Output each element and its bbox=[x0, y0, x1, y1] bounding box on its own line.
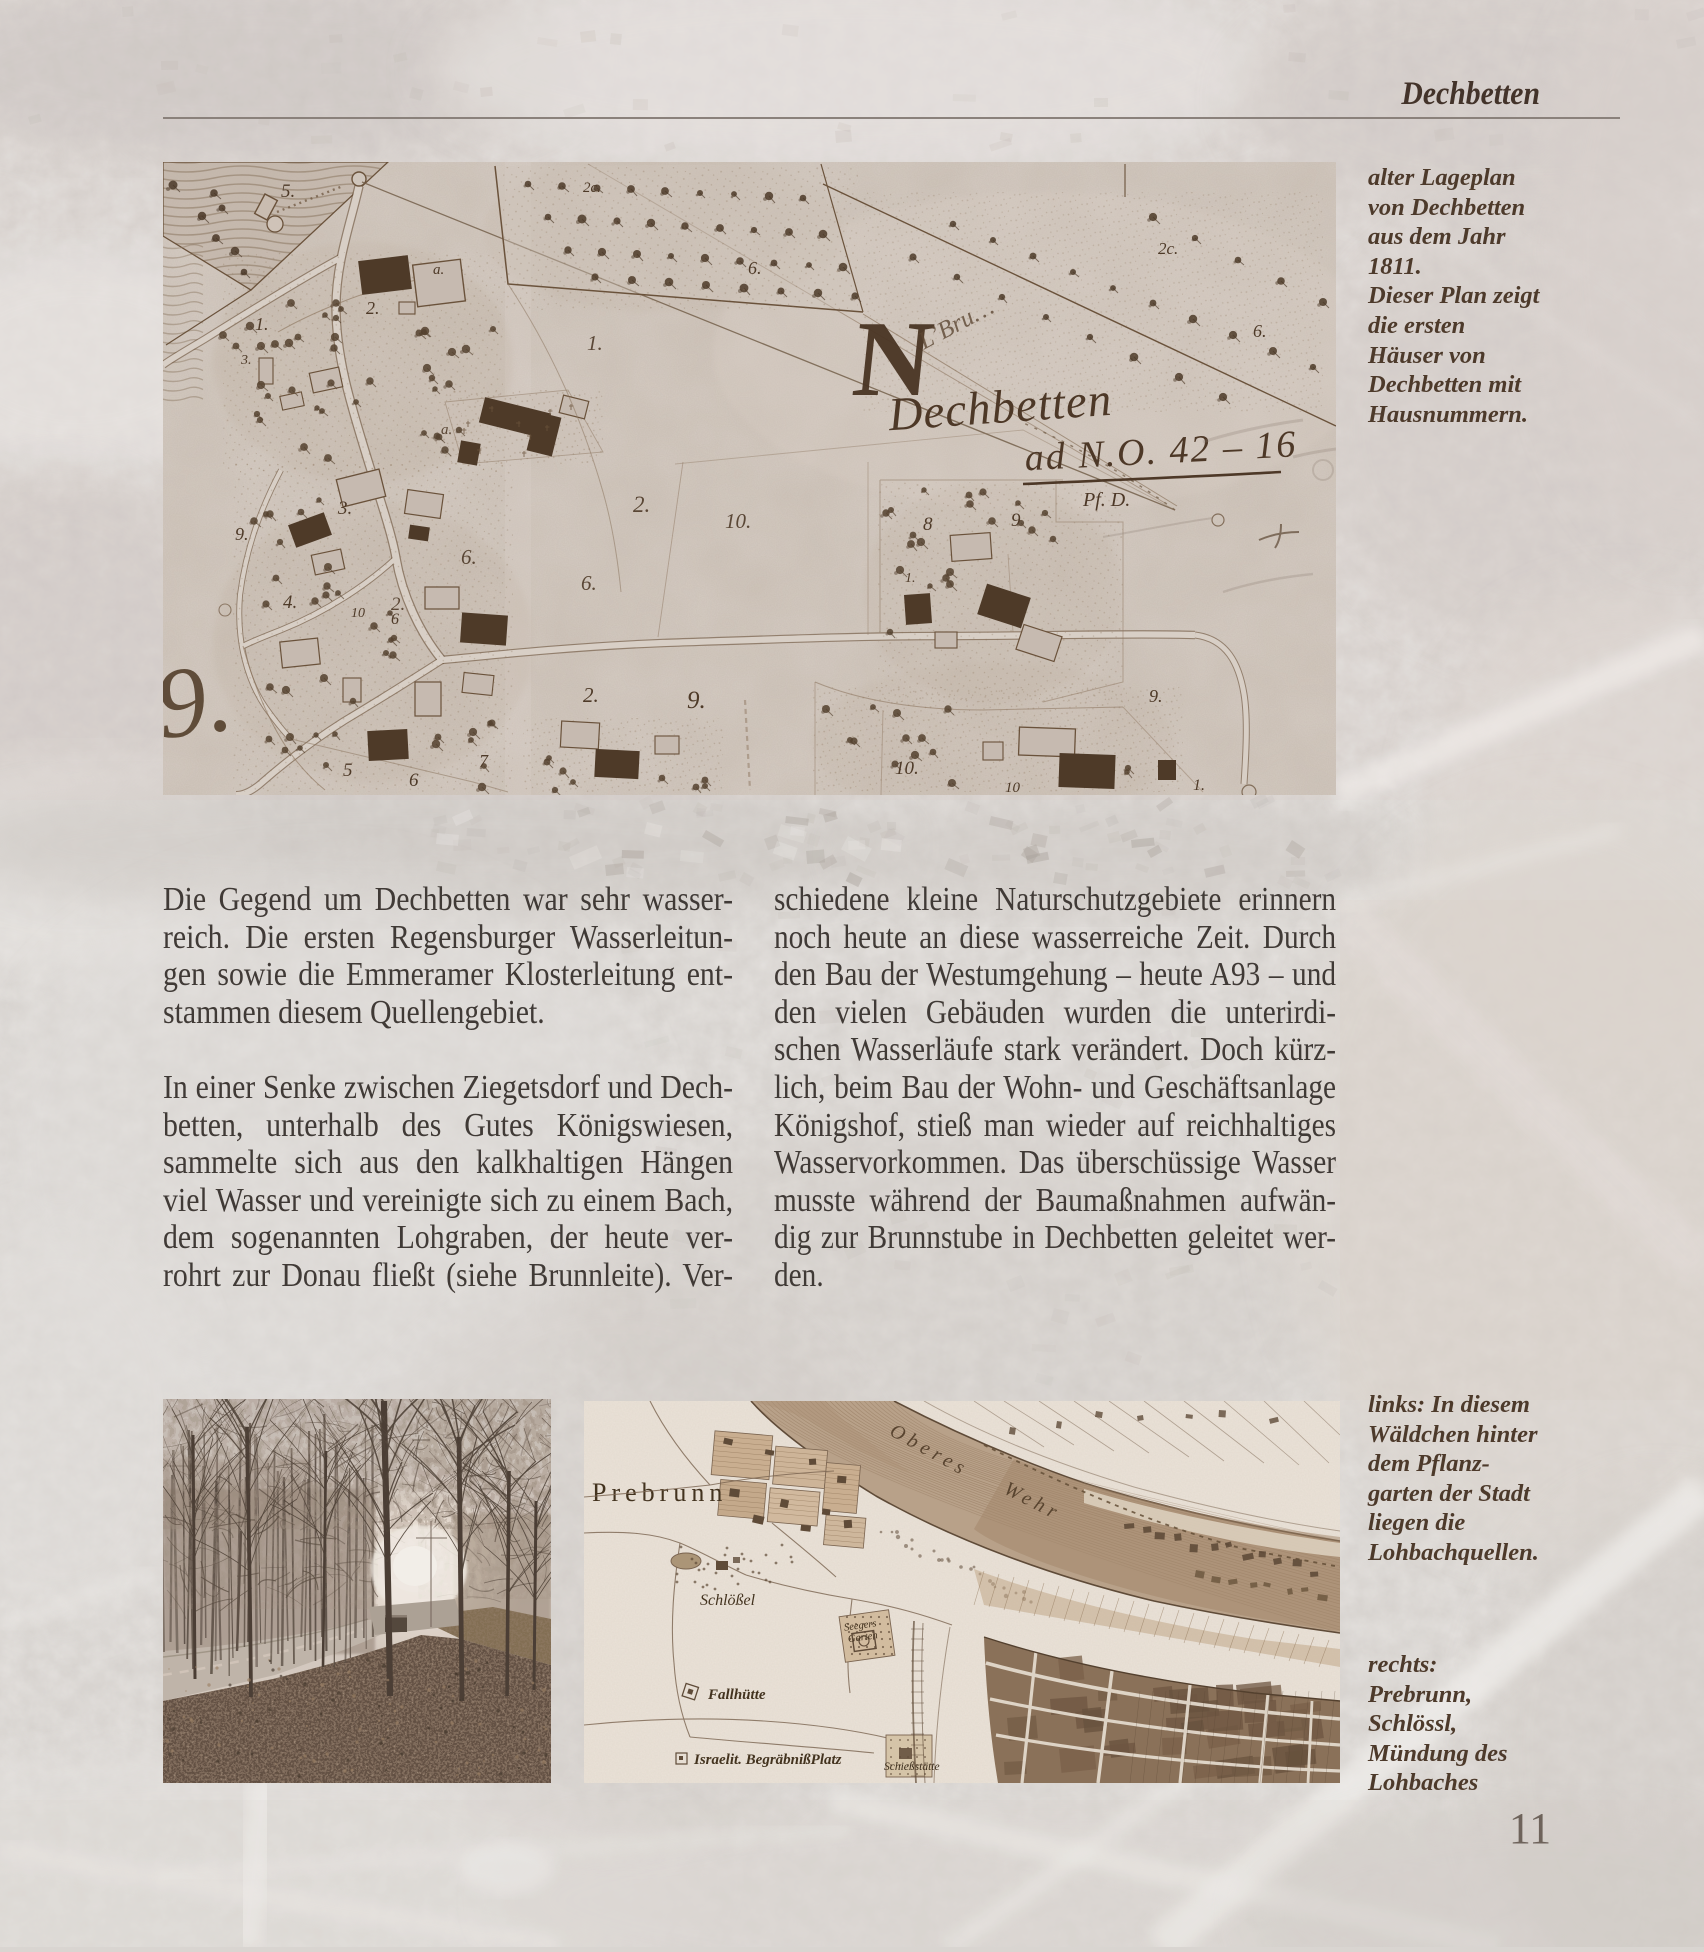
svg-text:10: 10 bbox=[1005, 780, 1021, 795]
svg-text:1.: 1. bbox=[905, 571, 916, 586]
svg-text:9.: 9. bbox=[235, 524, 249, 544]
svg-text:10: 10 bbox=[351, 606, 365, 621]
svg-text:2.: 2. bbox=[366, 298, 380, 318]
svg-text:Pf. D.: Pf. D. bbox=[1082, 489, 1130, 511]
svg-text:1.: 1. bbox=[255, 314, 269, 334]
svg-text:9: 9 bbox=[1011, 510, 1021, 531]
svg-text:2.: 2. bbox=[633, 492, 650, 517]
svg-text:1.: 1. bbox=[587, 331, 603, 355]
svg-text:9.: 9. bbox=[1149, 686, 1163, 706]
svg-text:4.: 4. bbox=[283, 592, 297, 613]
svg-text:10.: 10. bbox=[725, 509, 751, 533]
svg-text:Israelit. BegräbnißPlatz: Israelit. BegräbnißPlatz bbox=[693, 1752, 842, 1768]
svg-text:Schießstätte: Schießstätte bbox=[884, 1761, 940, 1773]
svg-text:6: 6 bbox=[409, 770, 419, 791]
svg-text:6.: 6. bbox=[1253, 321, 1267, 341]
svg-text:2c.: 2c. bbox=[1158, 239, 1178, 258]
svg-text:a.: a. bbox=[441, 422, 452, 438]
svg-text:9.: 9. bbox=[687, 687, 706, 714]
svg-text:5.: 5. bbox=[281, 181, 295, 202]
svg-text:Schlößel: Schlößel bbox=[700, 1592, 756, 1609]
svg-text:Fallhütte: Fallhütte bbox=[707, 1687, 766, 1703]
svg-text:6: 6 bbox=[391, 611, 399, 628]
svg-text:7: 7 bbox=[479, 751, 489, 771]
svg-text:6.: 6. bbox=[748, 258, 762, 278]
svg-text:2.: 2. bbox=[583, 683, 599, 707]
svg-text:1.: 1. bbox=[1193, 777, 1205, 794]
svg-text:6.: 6. bbox=[581, 571, 597, 595]
svg-text:a.: a. bbox=[433, 262, 444, 278]
svg-text:10.: 10. bbox=[895, 758, 919, 779]
svg-text:3.: 3. bbox=[337, 498, 352, 519]
svg-text:2c.: 2c. bbox=[583, 180, 601, 196]
svg-text:8: 8 bbox=[923, 514, 933, 535]
svg-text:5: 5 bbox=[343, 760, 353, 781]
svg-text:3.: 3. bbox=[240, 353, 252, 368]
